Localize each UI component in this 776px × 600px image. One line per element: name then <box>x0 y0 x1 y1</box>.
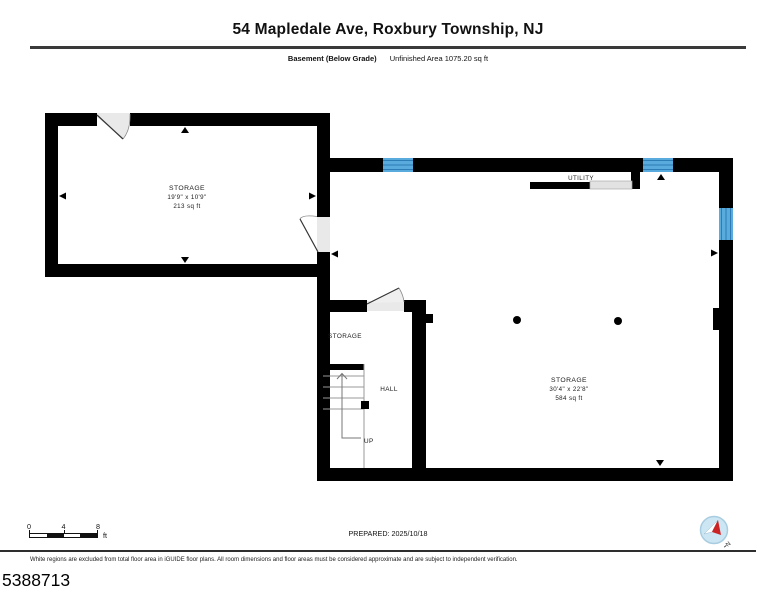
door-storage-upper-right <box>300 216 330 252</box>
room-storage-upper-area: 213 sq ft <box>173 203 200 210</box>
footer-divider <box>0 550 756 552</box>
room-storage-upper-dims: 19'9" x 10'9" <box>167 194 206 201</box>
post-round <box>614 317 622 325</box>
storage-small-wall <box>330 300 367 312</box>
wall-segment <box>719 240 733 481</box>
wall-segment <box>130 113 330 126</box>
dim-arrow-down-icon <box>181 257 189 263</box>
room-hall-name: HALL <box>380 386 398 393</box>
room-storage-main-name: STORAGE <box>551 377 587 384</box>
wall-pilaster <box>713 308 733 330</box>
compass-north-label: N <box>725 541 732 548</box>
prepared-date: PREPARED: 2025/10/18 <box>0 529 776 538</box>
dim-arrow-left-icon <box>331 251 338 258</box>
utility-equipment <box>590 181 632 189</box>
stairs-up-label: UP <box>364 438 374 445</box>
window-top-right <box>643 158 673 172</box>
interior-walls <box>323 172 733 468</box>
room-storage-main-dims: 30'4" x 22'8" <box>549 386 588 393</box>
door-hall <box>367 288 404 311</box>
disclaimer-text: White regions are excluded from total fl… <box>30 557 730 563</box>
post-square <box>424 314 433 323</box>
door-storage-upper-top <box>97 113 130 139</box>
dim-arrow-down-icon <box>656 460 664 466</box>
wall-segment <box>719 172 733 208</box>
stair-post <box>361 401 369 409</box>
room-storage-small-name: STORAGE <box>328 333 362 340</box>
dim-arrow-up-icon <box>181 127 189 133</box>
wall-segment <box>673 158 733 172</box>
dim-arrow-right-icon <box>711 250 718 257</box>
support-posts <box>424 314 622 325</box>
dim-arrow-right-icon <box>309 193 316 200</box>
window-top-left <box>383 158 413 172</box>
utility-half-wall <box>530 182 590 189</box>
wall-segment <box>45 264 330 277</box>
wall-segment <box>317 468 733 481</box>
stair-head-wall <box>323 364 364 370</box>
dim-arrow-up-icon <box>657 174 665 180</box>
wall-segment <box>45 113 58 277</box>
window-right-wall <box>719 208 733 240</box>
photo-id: 5388713 <box>2 570 70 591</box>
room-storage-upper-name: STORAGE <box>169 185 205 192</box>
post-round <box>513 316 521 324</box>
floor-plan-drawing: STORAGE 19'9" x 10'9" 213 sq ft STORAGE … <box>0 0 776 600</box>
wall-segment <box>317 113 330 217</box>
floor-plan-page: 54 Mapledale Ave, Roxbury Township, NJ B… <box>0 0 776 600</box>
dim-arrow-left-icon <box>59 193 66 200</box>
wall-segment <box>330 158 383 172</box>
hall-wall <box>412 300 426 468</box>
compass-icon: N <box>697 513 737 551</box>
stairs-up-arrow <box>337 374 361 439</box>
wall-segment <box>413 158 643 172</box>
room-utility-name: UTILITY <box>568 175 594 182</box>
room-storage-main-area: 584 sq ft <box>555 395 582 402</box>
doors <box>97 113 404 311</box>
storage-small-wall <box>404 300 426 312</box>
